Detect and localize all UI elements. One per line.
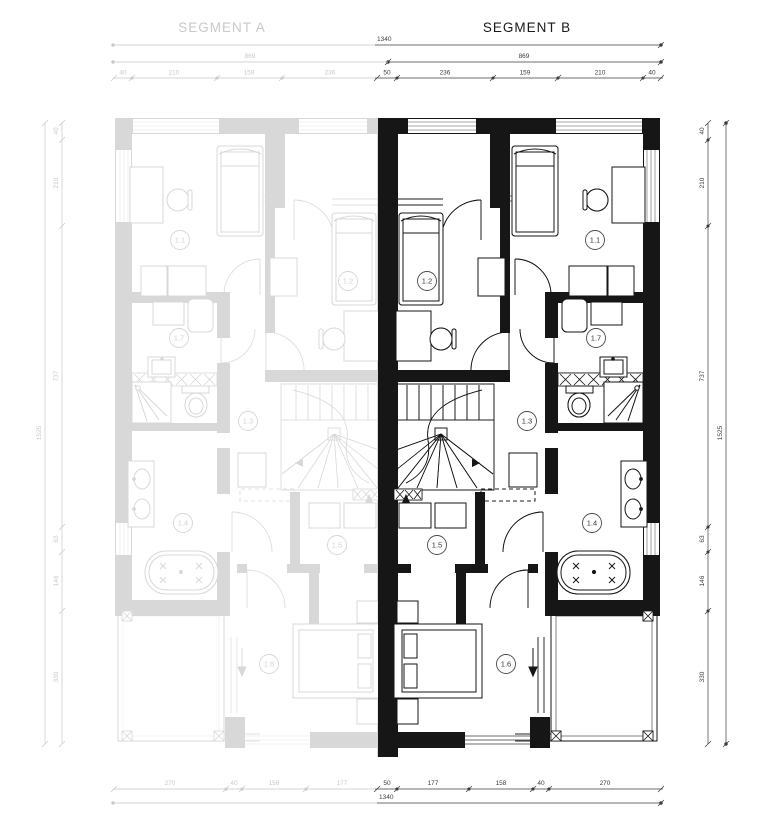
terrace-corner-markers xyxy=(551,611,653,741)
dim-top-total: 1340 xyxy=(375,36,664,48)
dim-label-ghost: 63 xyxy=(53,535,60,543)
ghost-room-label: 1.5 xyxy=(328,536,347,555)
dim-label: 236 xyxy=(440,70,451,77)
dim-label: 40 xyxy=(648,70,656,77)
room-label-1-5: 1.5 xyxy=(428,536,447,555)
door-bath-14 xyxy=(503,512,543,552)
ghost-room-label: 1.1 xyxy=(171,231,190,250)
dim-label-ghost: 146 xyxy=(53,575,60,586)
ghost-room-label: 1.7 xyxy=(170,329,189,348)
dim-label: 210 xyxy=(595,70,606,77)
dim-label-ghost: 177 xyxy=(337,780,348,787)
room-label-1-3: 1.3 xyxy=(518,412,537,431)
ghost-room-label-text: 1.2 xyxy=(343,277,353,286)
dim-label-ghost: 236 xyxy=(325,70,336,77)
room-label-1-6: 1.6 xyxy=(497,655,516,674)
ghost-room-label-text: 1.5 xyxy=(332,541,342,550)
dim-label: 146 xyxy=(699,575,706,586)
dim-label-ghost: 40 xyxy=(53,127,60,135)
room-label-1-7: 1.7 xyxy=(587,329,606,348)
dim-top-a-width: 869 xyxy=(112,53,388,63)
dim-left-total: 1525 xyxy=(36,120,48,747)
ghost-room-label-text: 1.3 xyxy=(243,417,253,426)
dim-label: 1525 xyxy=(717,425,724,440)
dim-label-ghost: 159 xyxy=(244,70,255,77)
segment-b-title: SEGMENT B xyxy=(483,20,571,35)
dim-top-b-width: 869 xyxy=(385,53,664,65)
ghost-room-label-text: 1.1 xyxy=(175,236,185,245)
dim-label: 158 xyxy=(496,780,507,787)
ghost-room-label-text: 1.7 xyxy=(174,334,184,343)
closet-partition xyxy=(398,199,443,205)
segment-a-title: SEGMENT A xyxy=(178,20,266,35)
dim-right-chain: 40 210 737 63 146 330 xyxy=(699,120,711,747)
dim-label: 50 xyxy=(383,780,391,787)
dim-label-ghost: 330 xyxy=(53,671,60,682)
dim-left-chain: 40 210 737 63 146 330 xyxy=(53,120,65,747)
dim-label: 869 xyxy=(519,53,530,60)
ghost-room-label: 1.4 xyxy=(174,514,193,533)
dim-label-ghost: 737 xyxy=(53,370,60,381)
floor-plan-svg: SEGMENT A SEGMENT B xyxy=(0,0,768,832)
door-room-12 xyxy=(471,332,509,370)
room-label-1-2: 1.2 xyxy=(418,272,437,291)
dim-label: 1340 xyxy=(377,36,392,43)
floor-plan-canvas: SEGMENT A SEGMENT B xyxy=(0,0,768,832)
room-label-text: 1.1 xyxy=(590,236,600,245)
dim-label: 159 xyxy=(520,70,531,77)
ghost-room-label: 1.2 xyxy=(339,272,358,291)
dim-bottom-a-chain: 270 40 158 177 xyxy=(111,780,375,792)
door-room-11 xyxy=(515,259,551,295)
dim-label: 40 xyxy=(699,127,706,135)
dim-label-ghost: 210 xyxy=(53,177,60,188)
room-label-text: 1.5 xyxy=(432,541,442,550)
dim-label: 270 xyxy=(600,780,611,787)
dim-label: 40 xyxy=(537,780,545,787)
room-label-1-4: 1.4 xyxy=(583,514,602,533)
ghost-room-label: 1.3 xyxy=(239,412,258,431)
dim-bottom-total: 1340 xyxy=(377,794,664,806)
dim-right-total: 1525 xyxy=(717,120,729,747)
dim-label: 330 xyxy=(699,671,706,682)
door-room-16 xyxy=(490,570,528,608)
door-closet-12 xyxy=(441,200,481,240)
dim-label-ghost: 158 xyxy=(269,780,280,787)
dim-label: 1340 xyxy=(379,794,394,801)
dim-label-ghost: 40 xyxy=(119,70,127,77)
dim-label: 210 xyxy=(699,177,706,188)
room-label-1-1: 1.1 xyxy=(586,231,605,250)
dim-label-ghost: 270 xyxy=(165,780,176,787)
dim-top-a-chain: 40 210 159 236 xyxy=(111,70,375,82)
dim-label-ghost: 1525 xyxy=(36,425,43,440)
room-label-text: 1.4 xyxy=(587,519,597,528)
segment-a-plan-mirror xyxy=(115,118,397,757)
ghost-room-label-text: 1.4 xyxy=(178,519,188,528)
room-label-text: 1.2 xyxy=(422,277,432,286)
room-label-text: 1.6 xyxy=(501,660,511,669)
dim-label: 177 xyxy=(428,780,439,787)
dim-label: 63 xyxy=(699,535,706,543)
dim-bottom-b-chain: 50 177 158 40 270 xyxy=(374,780,664,792)
ghost-room-label-text: 1.6 xyxy=(264,660,274,669)
dim-label-ghost: 40 xyxy=(230,780,238,787)
terrace-glazing xyxy=(538,637,544,713)
dim-label-ghost: 869 xyxy=(245,53,256,60)
ghost-room-label: 1.6 xyxy=(260,655,279,674)
dim-label: 737 xyxy=(699,370,706,381)
headroom-dashed-line xyxy=(481,489,535,501)
room-label-text: 1.7 xyxy=(591,334,601,343)
dim-label: 50 xyxy=(383,70,391,77)
dim-label-ghost: 210 xyxy=(169,70,180,77)
dim-top-b-chain: 50 236 159 210 40 xyxy=(374,70,664,82)
room-label-text: 1.3 xyxy=(522,417,532,426)
